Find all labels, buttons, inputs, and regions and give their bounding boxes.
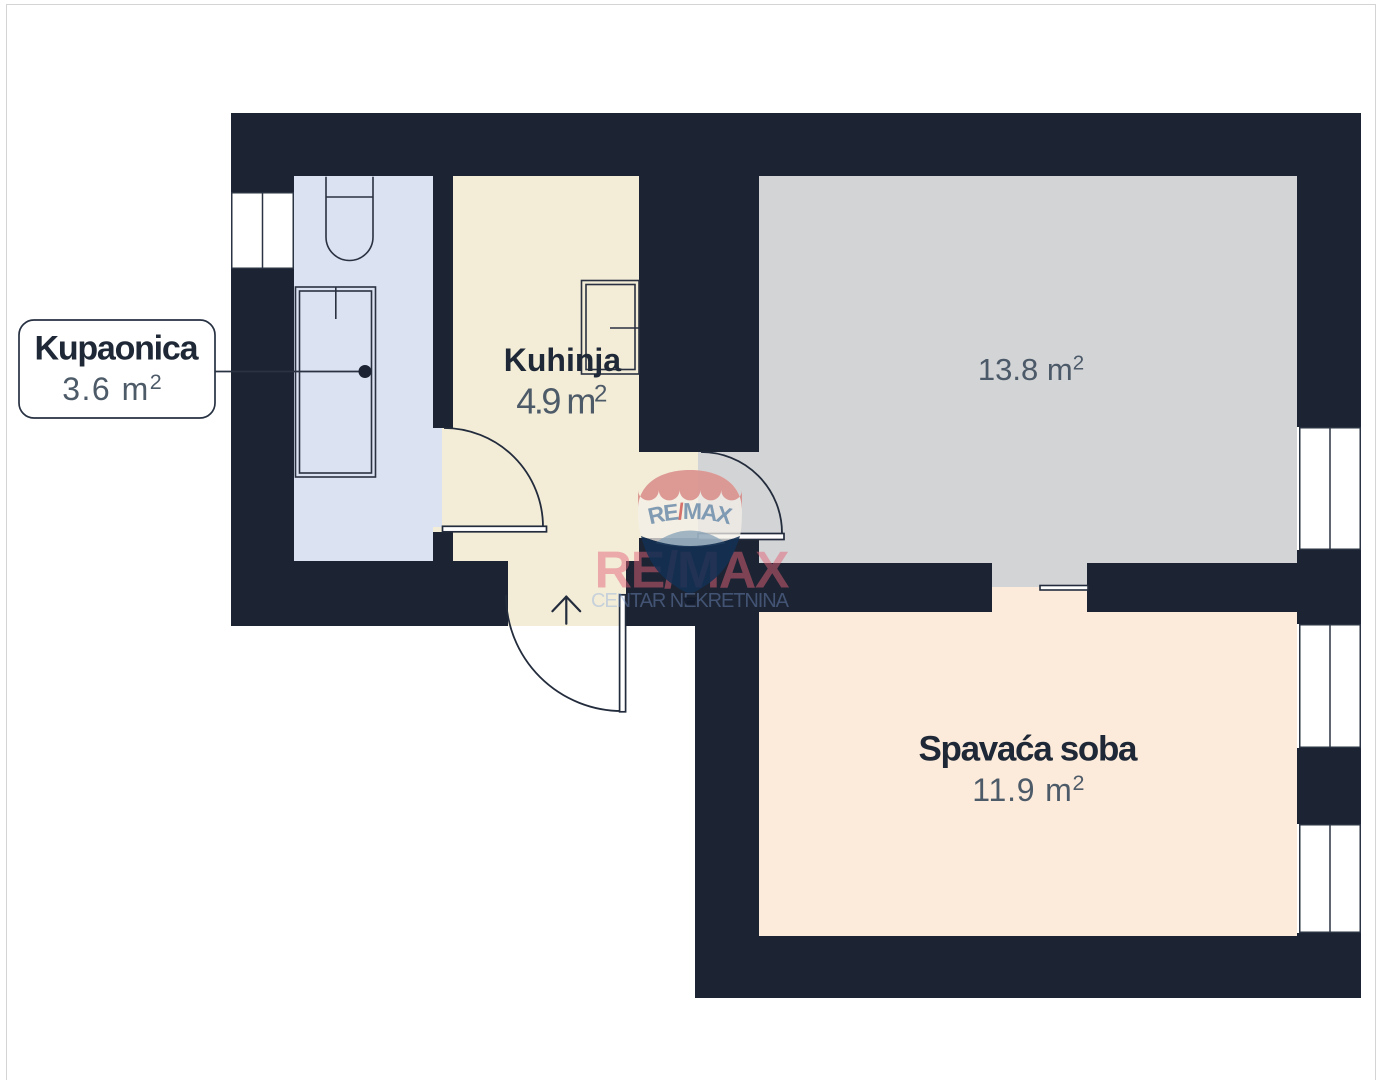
svg-text:13.8 m2: 13.8 m2 xyxy=(978,352,1084,388)
svg-text:3.6 m2: 3.6 m2 xyxy=(62,370,163,407)
svg-text:Kupaonica: Kupaonica xyxy=(35,329,200,367)
svg-text:11.9 m2: 11.9 m2 xyxy=(972,771,1085,808)
svg-text:Kuhinja: Kuhinja xyxy=(504,342,622,378)
svg-text:4.9 m2: 4.9 m2 xyxy=(516,381,607,422)
svg-text:Spavaća soba: Spavaća soba xyxy=(919,730,1139,769)
